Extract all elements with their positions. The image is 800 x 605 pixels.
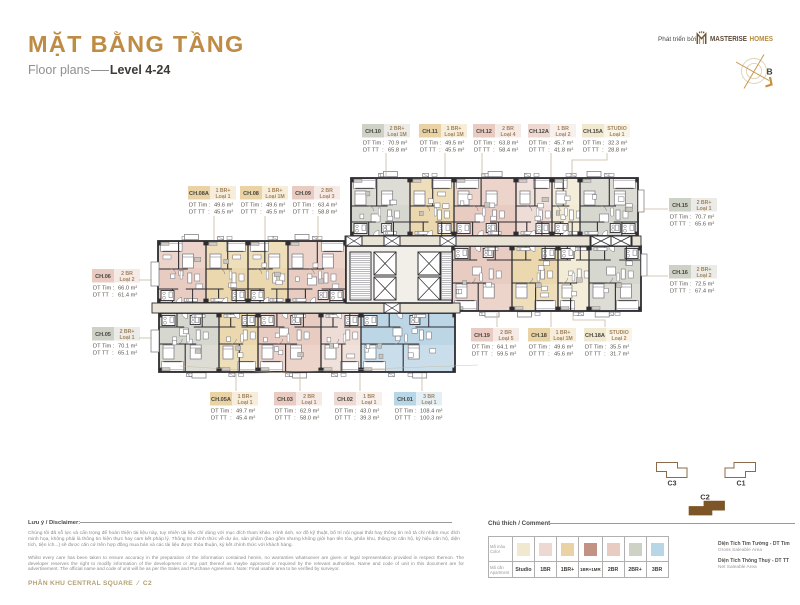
svg-text:CH.18: CH.18: [531, 333, 547, 339]
svg-text:28.8 m²: 28.8 m²: [608, 147, 627, 153]
svg-text:66.0 m²: 66.0 m²: [118, 285, 137, 291]
svg-text:CH.12A: CH.12A: [529, 129, 549, 135]
svg-text:61.4 m²: 61.4 m²: [118, 292, 137, 298]
svg-text:HOMES: HOMES: [750, 34, 774, 43]
svg-text:70.7 m²: 70.7 m²: [695, 214, 714, 220]
svg-text:100.3 m²: 100.3 m²: [420, 415, 443, 421]
svg-text:CH.11: CH.11: [422, 129, 438, 135]
svg-text:DT TT :: DT TT :: [670, 221, 691, 227]
svg-text:DT Tim :: DT Tim :: [583, 140, 605, 146]
svg-text:108.4 m²: 108.4 m²: [420, 408, 443, 414]
svg-text:Loại 2: Loại 2: [120, 277, 135, 283]
svg-text:DT Tim :: DT Tim :: [189, 202, 211, 208]
svg-text:CH.16: CH.16: [672, 270, 688, 276]
svg-text:45.4 m²: 45.4 m²: [236, 415, 255, 421]
svg-text:CH.05: CH.05: [95, 332, 111, 338]
svg-text:Loại 1: Loại 1: [302, 400, 317, 406]
svg-text:63.4 m²: 63.4 m²: [318, 202, 337, 208]
svg-text:Loại 1M: Loại 1M: [387, 132, 406, 138]
svg-text:65.1 m²: 65.1 m²: [118, 350, 137, 356]
svg-text:C2: C2: [700, 493, 710, 502]
svg-text:70.1 m²: 70.1 m²: [118, 343, 137, 349]
svg-text:CH.19: CH.19: [474, 333, 490, 339]
svg-text:45.7 m²: 45.7 m²: [554, 140, 573, 146]
svg-text:Loại 1: Loại 1: [610, 132, 625, 138]
svg-text:MASTERISE: MASTERISE: [710, 34, 747, 43]
svg-text:DT TT :: DT TT :: [275, 415, 296, 421]
svg-text:Loại 2: Loại 2: [612, 336, 627, 342]
svg-text:DT TT :: DT TT :: [420, 147, 441, 153]
svg-text:49.6 m²: 49.6 m²: [554, 344, 573, 350]
svg-text:DT Tim :: DT Tim :: [529, 344, 551, 350]
svg-text:72.5 m²: 72.5 m²: [695, 281, 714, 287]
svg-text:DT TT :: DT TT :: [529, 147, 550, 153]
svg-text:Loại 3: Loại 3: [320, 194, 335, 200]
svg-text:DT TT :: DT TT :: [93, 292, 114, 298]
svg-text:65.6 m²: 65.6 m²: [695, 221, 714, 227]
svg-text:43.0 m²: 43.0 m²: [360, 408, 379, 414]
svg-text:62.9 m²: 62.9 m²: [300, 408, 319, 414]
svg-text:DT Tim :: DT Tim :: [529, 140, 551, 146]
svg-text:CH.12: CH.12: [476, 129, 492, 135]
svg-text:59.5 m²: 59.5 m²: [497, 351, 516, 357]
svg-text:DT TT :: DT TT :: [211, 415, 232, 421]
svg-text:CH.08: CH.08: [243, 191, 259, 197]
svg-text:DT TT :: DT TT :: [670, 288, 691, 294]
svg-text:45.5 m²: 45.5 m²: [214, 209, 233, 215]
svg-text:31.7 m²: 31.7 m²: [610, 351, 629, 357]
svg-text:Loại 1: Loại 1: [120, 335, 135, 341]
svg-text:DT Tim :: DT Tim :: [420, 140, 442, 146]
svg-text:Phát triển bởi: Phát triển bởi: [658, 35, 696, 43]
svg-text:49.6 m²: 49.6 m²: [214, 202, 233, 208]
svg-text:DT TT :: DT TT :: [363, 147, 384, 153]
svg-text:CH.03: CH.03: [277, 397, 293, 403]
svg-text:45.5 m²: 45.5 m²: [445, 147, 464, 153]
svg-text:CH.18A: CH.18A: [585, 333, 605, 339]
svg-text:DT Tim :: DT Tim :: [335, 408, 357, 414]
svg-text:DT Tim :: DT Tim :: [670, 281, 692, 287]
svg-text:45.5 m²: 45.5 m²: [266, 209, 285, 215]
svg-text:CH.15A: CH.15A: [583, 129, 603, 135]
svg-text:67.4 m²: 67.4 m²: [695, 288, 714, 294]
svg-text:CH.05A: CH.05A: [211, 397, 231, 403]
svg-text:Loại 5: Loại 5: [499, 336, 514, 342]
svg-text:DT Tim :: DT Tim :: [585, 344, 607, 350]
svg-text:Loại 1M: Loại 1M: [553, 336, 572, 342]
svg-text:DT Tim :: DT Tim :: [395, 408, 417, 414]
svg-text:64.1 m²: 64.1 m²: [497, 344, 516, 350]
svg-text:CH.01: CH.01: [397, 397, 413, 403]
svg-text:70.9 m²: 70.9 m²: [388, 140, 407, 146]
svg-text:Loại 1M: Loại 1M: [444, 132, 463, 138]
svg-text:C3: C3: [668, 481, 677, 488]
svg-text:CH.09: CH.09: [295, 191, 311, 197]
svg-text:Loại 4: Loại 4: [501, 132, 516, 138]
svg-text:49.6 m²: 49.6 m²: [266, 202, 285, 208]
svg-text:Loại 2: Loại 2: [697, 273, 712, 279]
svg-text:63.8 m²: 63.8 m²: [499, 140, 518, 146]
svg-text:DT Tim :: DT Tim :: [211, 408, 233, 414]
svg-text:Loại 1: Loại 1: [422, 400, 437, 406]
svg-text:DT TT :: DT TT :: [189, 209, 210, 215]
svg-text:49.7 m²: 49.7 m²: [236, 408, 255, 414]
svg-text:DT TT :: DT TT :: [472, 351, 493, 357]
svg-text:41.8 m²: 41.8 m²: [554, 147, 573, 153]
svg-text:Loại 1: Loại 1: [697, 206, 712, 212]
svg-text:45.6 m²: 45.6 m²: [554, 351, 573, 357]
svg-text:DT Tim :: DT Tim :: [670, 214, 692, 220]
svg-text:DT Tim :: DT Tim :: [472, 344, 494, 350]
svg-text:Loại 1: Loại 1: [216, 194, 231, 200]
svg-text:DT TT :: DT TT :: [335, 415, 356, 421]
svg-text:Loại 1: Loại 1: [362, 400, 377, 406]
svg-text:Loại 2: Loại 2: [556, 132, 571, 138]
svg-text:35.5 m²: 35.5 m²: [610, 344, 629, 350]
svg-text:DT Tim :: DT Tim :: [293, 202, 315, 208]
svg-text:32.3 m²: 32.3 m²: [608, 140, 627, 146]
svg-text:58.8 m²: 58.8 m²: [318, 209, 337, 215]
svg-text:DT TT :: DT TT :: [529, 351, 550, 357]
svg-text:DT TT :: DT TT :: [583, 147, 604, 153]
svg-text:DT TT :: DT TT :: [93, 350, 114, 356]
svg-text:DT Tim :: DT Tim :: [93, 285, 115, 291]
svg-text:DT TT :: DT TT :: [474, 147, 495, 153]
svg-text:39.3 m²: 39.3 m²: [360, 415, 379, 421]
svg-text:CH.06: CH.06: [95, 274, 111, 280]
svg-text:DT Tim :: DT Tim :: [363, 140, 385, 146]
svg-text:58.0 m²: 58.0 m²: [300, 415, 319, 421]
svg-text:CH.02: CH.02: [337, 397, 353, 403]
svg-text:DT Tim :: DT Tim :: [474, 140, 496, 146]
svg-text:DT Tim :: DT Tim :: [241, 202, 263, 208]
svg-text:CH.10: CH.10: [365, 129, 381, 135]
svg-text:DT Tim :: DT Tim :: [93, 343, 115, 349]
svg-text:DT TT :: DT TT :: [585, 351, 606, 357]
svg-text:C1: C1: [737, 481, 746, 488]
svg-text:B: B: [767, 67, 773, 77]
svg-text:Loại 1M: Loại 1M: [265, 194, 284, 200]
svg-text:DT Tim :: DT Tim :: [275, 408, 297, 414]
svg-text:DT TT :: DT TT :: [293, 209, 314, 215]
svg-text:CH.15: CH.15: [672, 203, 688, 209]
svg-text:58.4 m²: 58.4 m²: [499, 147, 518, 153]
svg-text:DT TT :: DT TT :: [395, 415, 416, 421]
svg-text:CH.08A: CH.08A: [189, 191, 209, 197]
svg-text:DT TT :: DT TT :: [241, 209, 262, 215]
svg-text:65.8 m²: 65.8 m²: [388, 147, 407, 153]
svg-text:49.5 m²: 49.5 m²: [445, 140, 464, 146]
svg-text:Loại 1: Loại 1: [238, 400, 253, 406]
